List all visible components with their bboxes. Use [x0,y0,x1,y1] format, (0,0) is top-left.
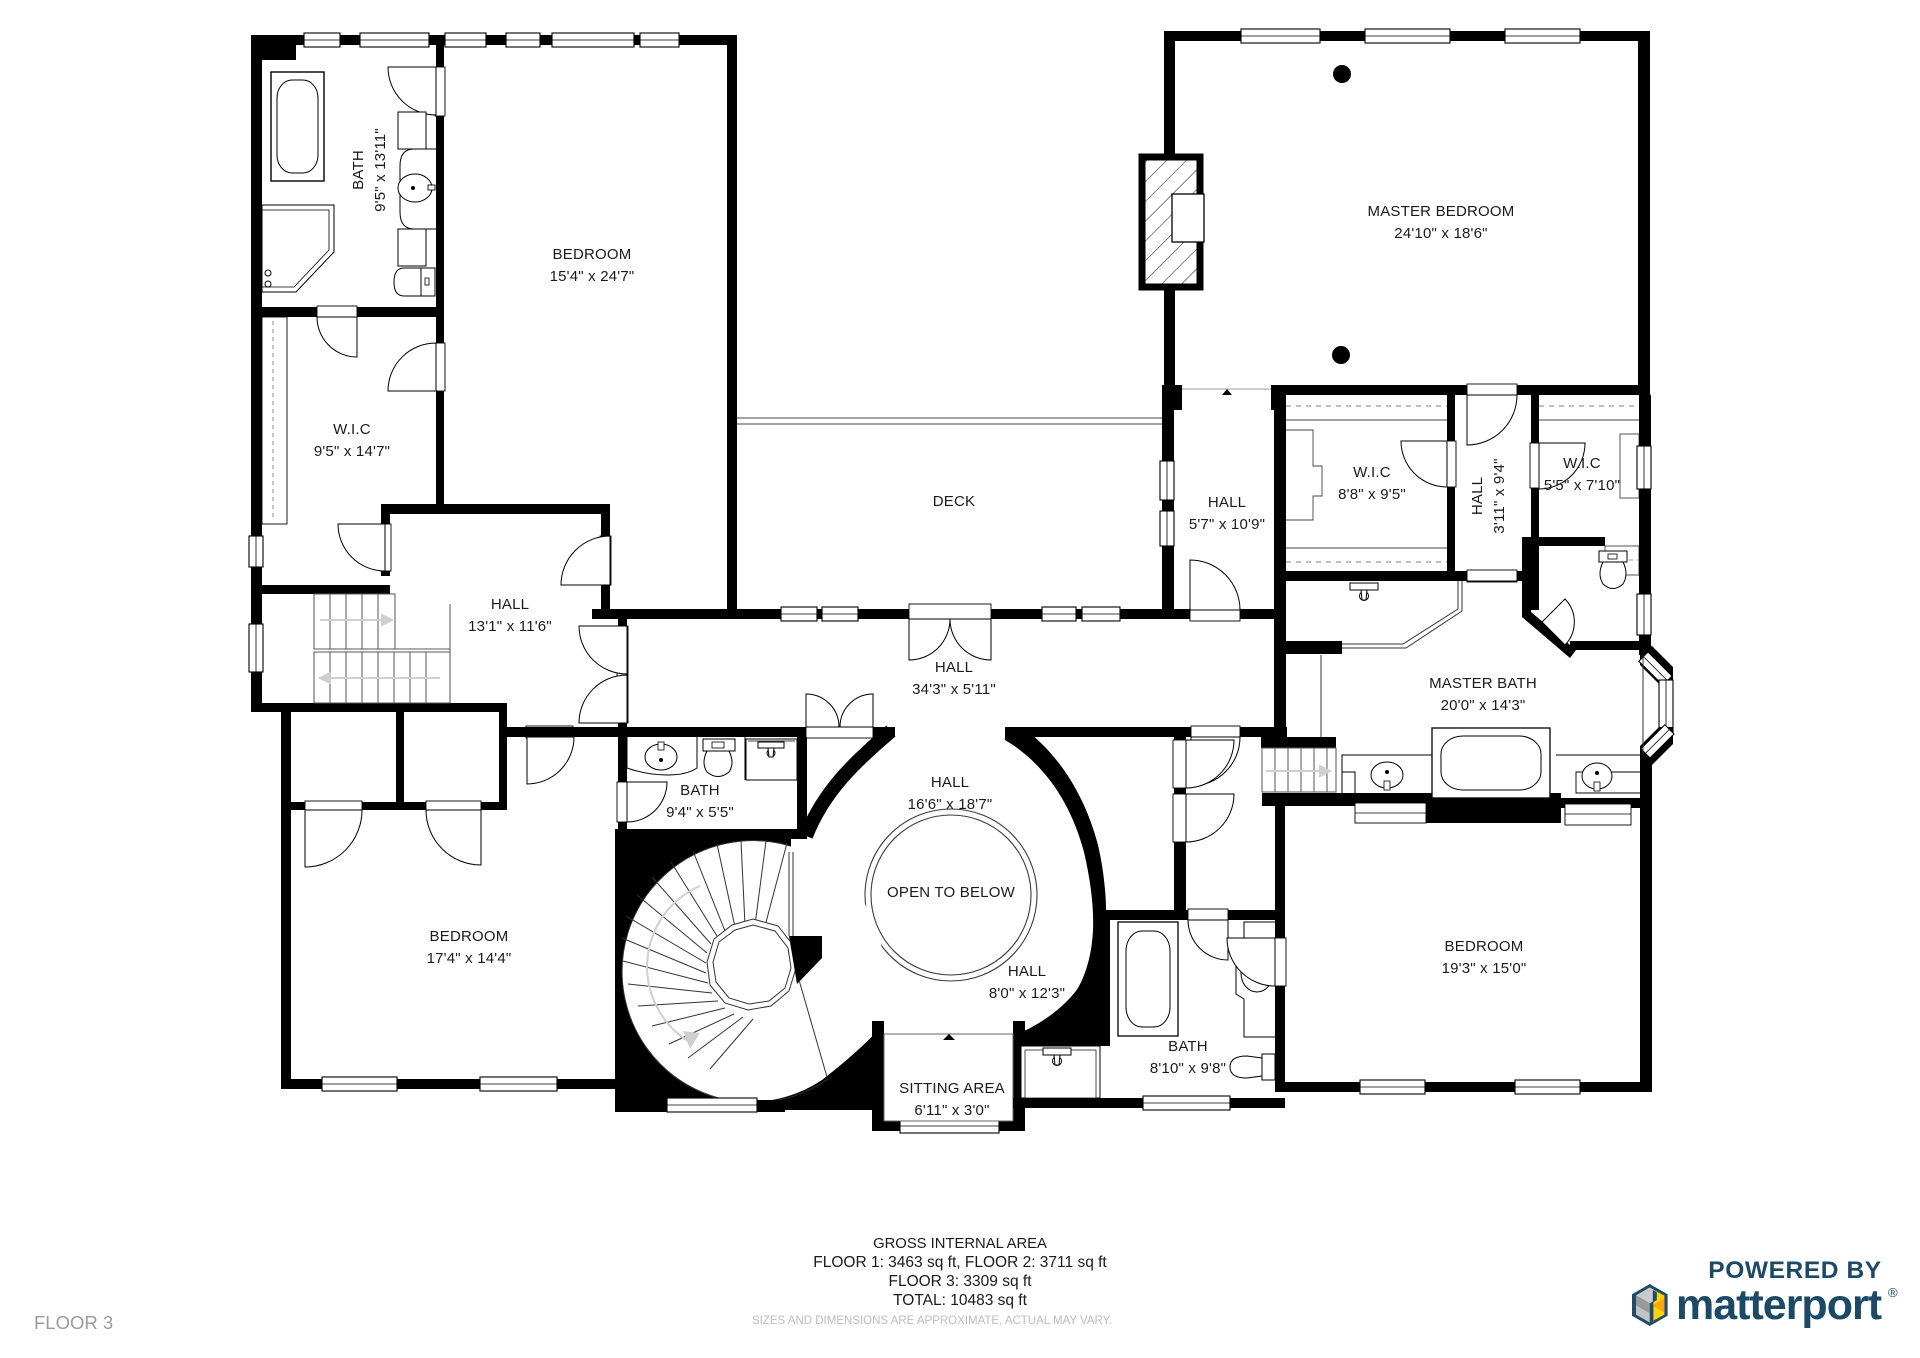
svg-text:BEDROOM: BEDROOM [553,246,632,263]
svg-text:15'4" x 24'7": 15'4" x 24'7" [550,268,635,285]
svg-text:HALL: HALL [1208,494,1246,511]
svg-text:17'4" x 14'4": 17'4" x 14'4" [427,950,512,967]
svg-text:HALL: HALL [935,659,973,676]
svg-text:matterport: matterport [1676,1281,1882,1329]
svg-text:19'3" x 15'0": 19'3" x 15'0" [1442,960,1527,977]
svg-text:HALL: HALL [491,596,529,613]
svg-text:GROSS INTERNAL AREA: GROSS INTERNAL AREA [873,1236,1047,1252]
svg-text:8'10" x 9'8": 8'10" x 9'8" [1150,1060,1226,1077]
svg-text:8'8" x 9'5": 8'8" x 9'5" [1338,486,1406,503]
svg-text:BATH: BATH [680,782,720,799]
svg-text:MASTER BATH: MASTER BATH [1429,675,1537,692]
svg-text:SITTING AREA: SITTING AREA [899,1080,1005,1097]
svg-text:24'10" x 18'6": 24'10" x 18'6" [1394,225,1487,242]
svg-text:BATH: BATH [1168,1038,1208,1055]
svg-text:DECK: DECK [933,493,975,510]
svg-text:TOTAL: 10483 sq ft: TOTAL: 10483 sq ft [893,1292,1028,1309]
svg-text:5'7" x 10'9": 5'7" x 10'9" [1189,516,1265,533]
svg-text:13'1" x 11'6": 13'1" x 11'6" [468,618,552,635]
svg-text:BATH: BATH [350,150,367,190]
svg-text:OPEN TO BELOW: OPEN TO BELOW [887,884,1016,901]
svg-text:9'5" x 14'7": 9'5" x 14'7" [314,443,390,460]
svg-text:9'5" x 13'11": 9'5" x 13'11" [372,128,389,212]
svg-text:®: ® [1888,1285,1898,1300]
svg-text:HALL: HALL [931,774,969,791]
svg-text:W.I.C: W.I.C [1563,455,1601,472]
svg-text:BEDROOM: BEDROOM [430,928,509,945]
svg-text:POWERED BY: POWERED BY [1708,1257,1881,1284]
svg-text:BEDROOM: BEDROOM [1445,938,1524,955]
svg-text:HALL: HALL [1008,963,1046,980]
svg-text:FLOOR 1: 3463 sq ft, FLOOR 2:: FLOOR 1: 3463 sq ft, FLOOR 2: 3711 sq ft [813,1254,1107,1271]
svg-text:8'0" x 12'3": 8'0" x 12'3" [989,985,1065,1002]
svg-text:3'11" x 9'4": 3'11" x 9'4" [1491,458,1508,533]
svg-text:16'6" x 18'7": 16'6" x 18'7" [908,796,993,813]
svg-text:SIZES AND DIMENSIONS ARE APPRO: SIZES AND DIMENSIONS ARE APPROXIMATE, AC… [752,1315,1112,1327]
svg-text:FLOOR 3: 3309 sq ft: FLOOR 3: 3309 sq ft [888,1273,1032,1290]
svg-text:HALL: HALL [1469,477,1486,515]
svg-text:5'5" x 7'10": 5'5" x 7'10" [1544,477,1620,494]
svg-text:9'4" x 5'5": 9'4" x 5'5" [666,804,734,821]
svg-text:MASTER BEDROOM: MASTER BEDROOM [1368,203,1515,220]
svg-text:34'3" x 5'11": 34'3" x 5'11" [912,681,996,698]
svg-text:FLOOR 3: FLOOR 3 [34,1312,113,1333]
svg-text:W.I.C: W.I.C [333,421,371,438]
svg-text:20'0" x 14'3": 20'0" x 14'3" [1441,697,1526,714]
svg-text:W.I.C: W.I.C [1353,464,1391,481]
svg-text:6'11" x 3'0": 6'11" x 3'0" [914,1102,989,1119]
